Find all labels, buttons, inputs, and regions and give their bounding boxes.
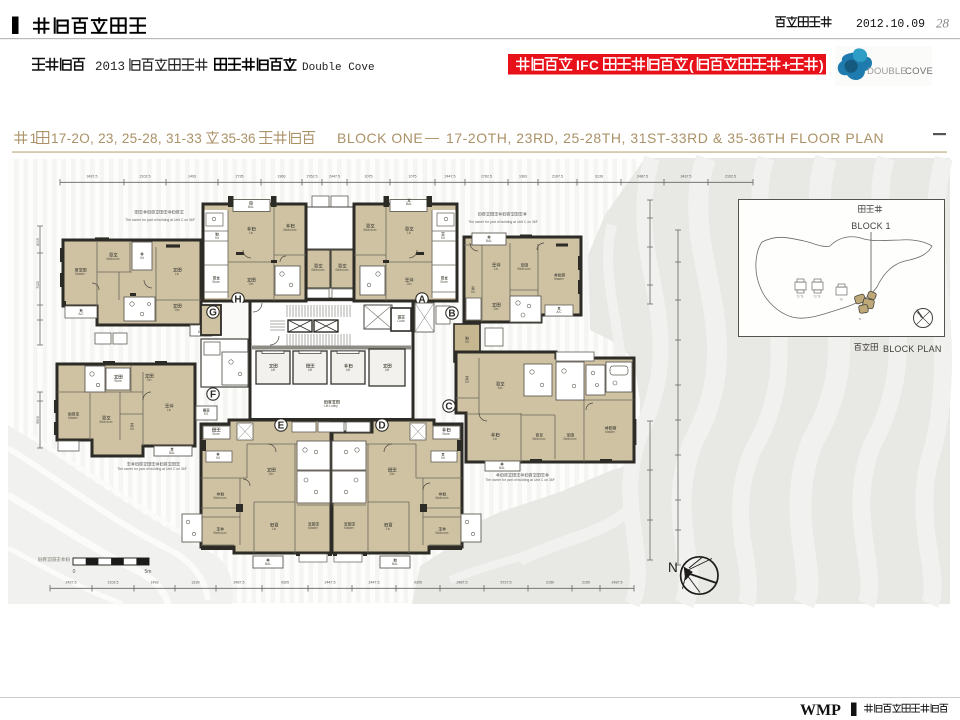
svg-text:BAL: BAL	[265, 562, 271, 566]
svg-text:Liv: Liv	[407, 231, 411, 235]
svg-text:Bedroom: Bedroom	[100, 420, 113, 424]
svg-text:2102.5: 2102.5	[725, 175, 736, 179]
svg-text:A/C: A/C	[556, 310, 562, 314]
svg-text:BAL: BAL	[169, 451, 175, 455]
svg-text:): )	[819, 57, 824, 73]
svg-text:+: +	[782, 57, 790, 73]
svg-text:Liv: Liv	[167, 408, 171, 412]
svg-text:Kit: Kit	[215, 236, 219, 240]
svg-text:Store: Store	[212, 280, 220, 284]
svg-text:BLOCK ONE: BLOCK ONE	[337, 130, 423, 146]
svg-text:Bedroom: Bedroom	[436, 496, 449, 500]
svg-text:2012.10.09: 2012.10.09	[856, 18, 925, 31]
svg-text:Kit: Kit	[471, 290, 475, 294]
svg-text:35-36: 35-36	[221, 131, 256, 146]
svg-text:Din: Din	[175, 308, 180, 312]
svg-text:Lift: Lift	[271, 368, 275, 372]
svg-text:Din: Din	[269, 472, 274, 476]
svg-text:2762.5: 2762.5	[307, 175, 318, 179]
svg-text:Master: Master	[68, 416, 79, 420]
svg-text:Din: Din	[494, 307, 499, 311]
svg-text:B: B	[448, 309, 455, 320]
svg-text:WMP: WMP	[800, 702, 841, 719]
svg-text:Master: Master	[605, 430, 616, 434]
svg-text:Bedroom: Bedroom	[436, 531, 449, 535]
svg-text:2447.5: 2447.5	[325, 581, 336, 585]
svg-text:Master: Master	[554, 277, 565, 281]
svg-text:3437.5: 3437.5	[681, 175, 692, 179]
svg-text:Bedroom: Bedroom	[214, 531, 227, 535]
svg-text:T2 T3: T2 T3	[797, 295, 804, 299]
svg-text:2150: 2150	[546, 581, 554, 585]
svg-text:F: F	[210, 390, 216, 401]
svg-text:2447.5: 2447.5	[369, 581, 380, 585]
svg-text:2107.5: 2107.5	[552, 175, 563, 179]
svg-text:Bedroom: Bedroom	[284, 228, 297, 232]
svg-text:2102.5: 2102.5	[108, 581, 119, 585]
svg-text:2487.5: 2487.5	[612, 581, 623, 585]
svg-text:9905: 9905	[36, 416, 40, 424]
svg-text:Store: Store	[212, 432, 220, 436]
svg-text:BAL: BAL	[392, 562, 398, 566]
svg-text:Kit: Kit	[216, 456, 220, 460]
svg-text:BAL: BAL	[406, 202, 412, 206]
svg-text:2487.5: 2487.5	[457, 581, 468, 585]
svg-text:Liv: Liv	[272, 527, 276, 531]
svg-text:E: E	[278, 421, 285, 432]
svg-text:Liv: Liv	[494, 267, 498, 271]
svg-text:2447.5: 2447.5	[329, 175, 340, 179]
svg-text:C: C	[445, 402, 452, 413]
svg-text:5m: 5m	[145, 569, 152, 575]
svg-text:—: —	[425, 129, 439, 145]
svg-text:3139: 3139	[595, 175, 603, 179]
svg-text:Bedroom: Bedroom	[312, 268, 325, 272]
svg-text:8005: 8005	[36, 238, 40, 246]
svg-text:Master: Master	[308, 526, 319, 530]
svg-text:28: 28	[936, 16, 950, 31]
svg-text:17-2OTH, 23RD, 25-28TH, 31ST-3: 17-2OTH, 23RD, 25-28TH, 31ST-33RD & 35-3…	[446, 130, 884, 146]
svg-text:2735: 2735	[236, 175, 244, 179]
svg-text:The owner for part of building: The owner for part of building at Unit C…	[485, 478, 555, 482]
svg-text:Din: Din	[390, 472, 395, 476]
svg-text:BAL: BAL	[248, 205, 254, 209]
svg-text:BLOCK 1: BLOCK 1	[851, 221, 890, 231]
svg-text:Kit: Kit	[140, 256, 144, 260]
svg-text:COVE: COVE	[905, 66, 933, 77]
svg-text:Code: Code	[397, 319, 405, 323]
svg-text:3139: 3139	[192, 581, 200, 585]
svg-text:Din: Din	[249, 282, 254, 286]
svg-text:(: (	[689, 57, 694, 73]
svg-text:Liv: Liv	[386, 527, 390, 531]
svg-text:Din: Din	[498, 386, 503, 390]
svg-text:The owner for part of building: The owner for part of building at Unit C…	[468, 220, 538, 224]
svg-text:1075: 1075	[365, 175, 373, 179]
svg-text:2487.5: 2487.5	[637, 175, 648, 179]
svg-text:T2 T3: T2 T3	[814, 295, 821, 299]
svg-text:5727.5: 5727.5	[501, 581, 512, 585]
svg-text:3437.5: 3437.5	[87, 175, 98, 179]
svg-text:Liv: Liv	[175, 272, 179, 276]
svg-text:Lift: Lift	[346, 368, 350, 372]
svg-text:Lift: Lift	[308, 368, 312, 372]
svg-text:Kit: Kit	[465, 340, 469, 344]
svg-text:BLOCK PLAN: BLOCK PLAN	[883, 344, 942, 354]
svg-text:9305: 9305	[281, 581, 289, 585]
svg-text:Double Cove: Double Cove	[302, 62, 375, 74]
svg-text:Master: Master	[75, 272, 86, 276]
svg-text:2762.5: 2762.5	[481, 175, 492, 179]
svg-text:IFC: IFC	[576, 58, 599, 73]
svg-text:Bedroom: Bedroom	[107, 257, 120, 261]
svg-text:Din: Din	[147, 378, 152, 382]
svg-text:G: G	[209, 308, 217, 319]
svg-text:Kit: Kit	[441, 236, 445, 240]
svg-text:Bedroom: Bedroom	[533, 437, 546, 441]
svg-text:7025: 7025	[36, 281, 40, 289]
svg-text:DOUBLE: DOUBLE	[867, 66, 907, 77]
svg-text:2102.5: 2102.5	[140, 175, 151, 179]
svg-text:The owner for part of building: The owner for part of building at Unit C…	[117, 467, 187, 471]
svg-text:Kit: Kit	[441, 456, 445, 460]
svg-text:Kit: Kit	[465, 380, 469, 384]
svg-text:ES: ES	[204, 412, 208, 416]
svg-text:1075: 1075	[409, 175, 417, 179]
svg-text:D: D	[378, 421, 385, 432]
svg-text:Bedroom: Bedroom	[564, 437, 577, 441]
svg-text:1963: 1963	[278, 175, 286, 179]
svg-text:A/C: A/C	[78, 312, 84, 316]
svg-text:Store: Store	[440, 280, 448, 284]
svg-text:Bedroom: Bedroom	[518, 267, 531, 271]
svg-text:N: N	[668, 560, 678, 575]
svg-text:0: 0	[73, 569, 76, 575]
svg-text:The owner for part of building: The owner for part of building at Unit C…	[125, 218, 195, 222]
svg-text:Liv: Liv	[249, 231, 253, 235]
svg-text:2013: 2013	[95, 60, 125, 74]
svg-text:Lift: Lift	[385, 368, 389, 372]
svg-text:Master: Master	[344, 526, 355, 530]
svg-text:Lift Lobby: Lift Lobby	[324, 404, 338, 408]
svg-text:BAL: BAL	[486, 239, 492, 243]
svg-text:9305: 9305	[414, 581, 422, 585]
svg-text:1493: 1493	[188, 175, 196, 179]
svg-text:Bedroom: Bedroom	[214, 496, 227, 500]
svg-text:1963: 1963	[519, 175, 527, 179]
svg-text:1493: 1493	[151, 581, 159, 585]
svg-text:2447.5: 2447.5	[445, 175, 456, 179]
svg-text:2487.5: 2487.5	[234, 581, 245, 585]
svg-text:BAL: BAL	[499, 466, 505, 470]
svg-text:Bedroom: Bedroom	[364, 228, 377, 232]
svg-text:Kit: Kit	[130, 427, 134, 431]
svg-text:Store: Store	[114, 379, 122, 383]
svg-text:Liv: Liv	[493, 437, 497, 441]
svg-text:Din: Din	[407, 282, 412, 286]
svg-text:17-2O, 23, 25-28, 31-33: 17-2O, 23, 25-28, 31-33	[51, 131, 202, 146]
svg-text:Bedroom: Bedroom	[336, 268, 349, 272]
svg-text:2437.5: 2437.5	[66, 581, 77, 585]
svg-text:2150: 2150	[582, 581, 590, 585]
svg-text:Store: Store	[442, 432, 450, 436]
